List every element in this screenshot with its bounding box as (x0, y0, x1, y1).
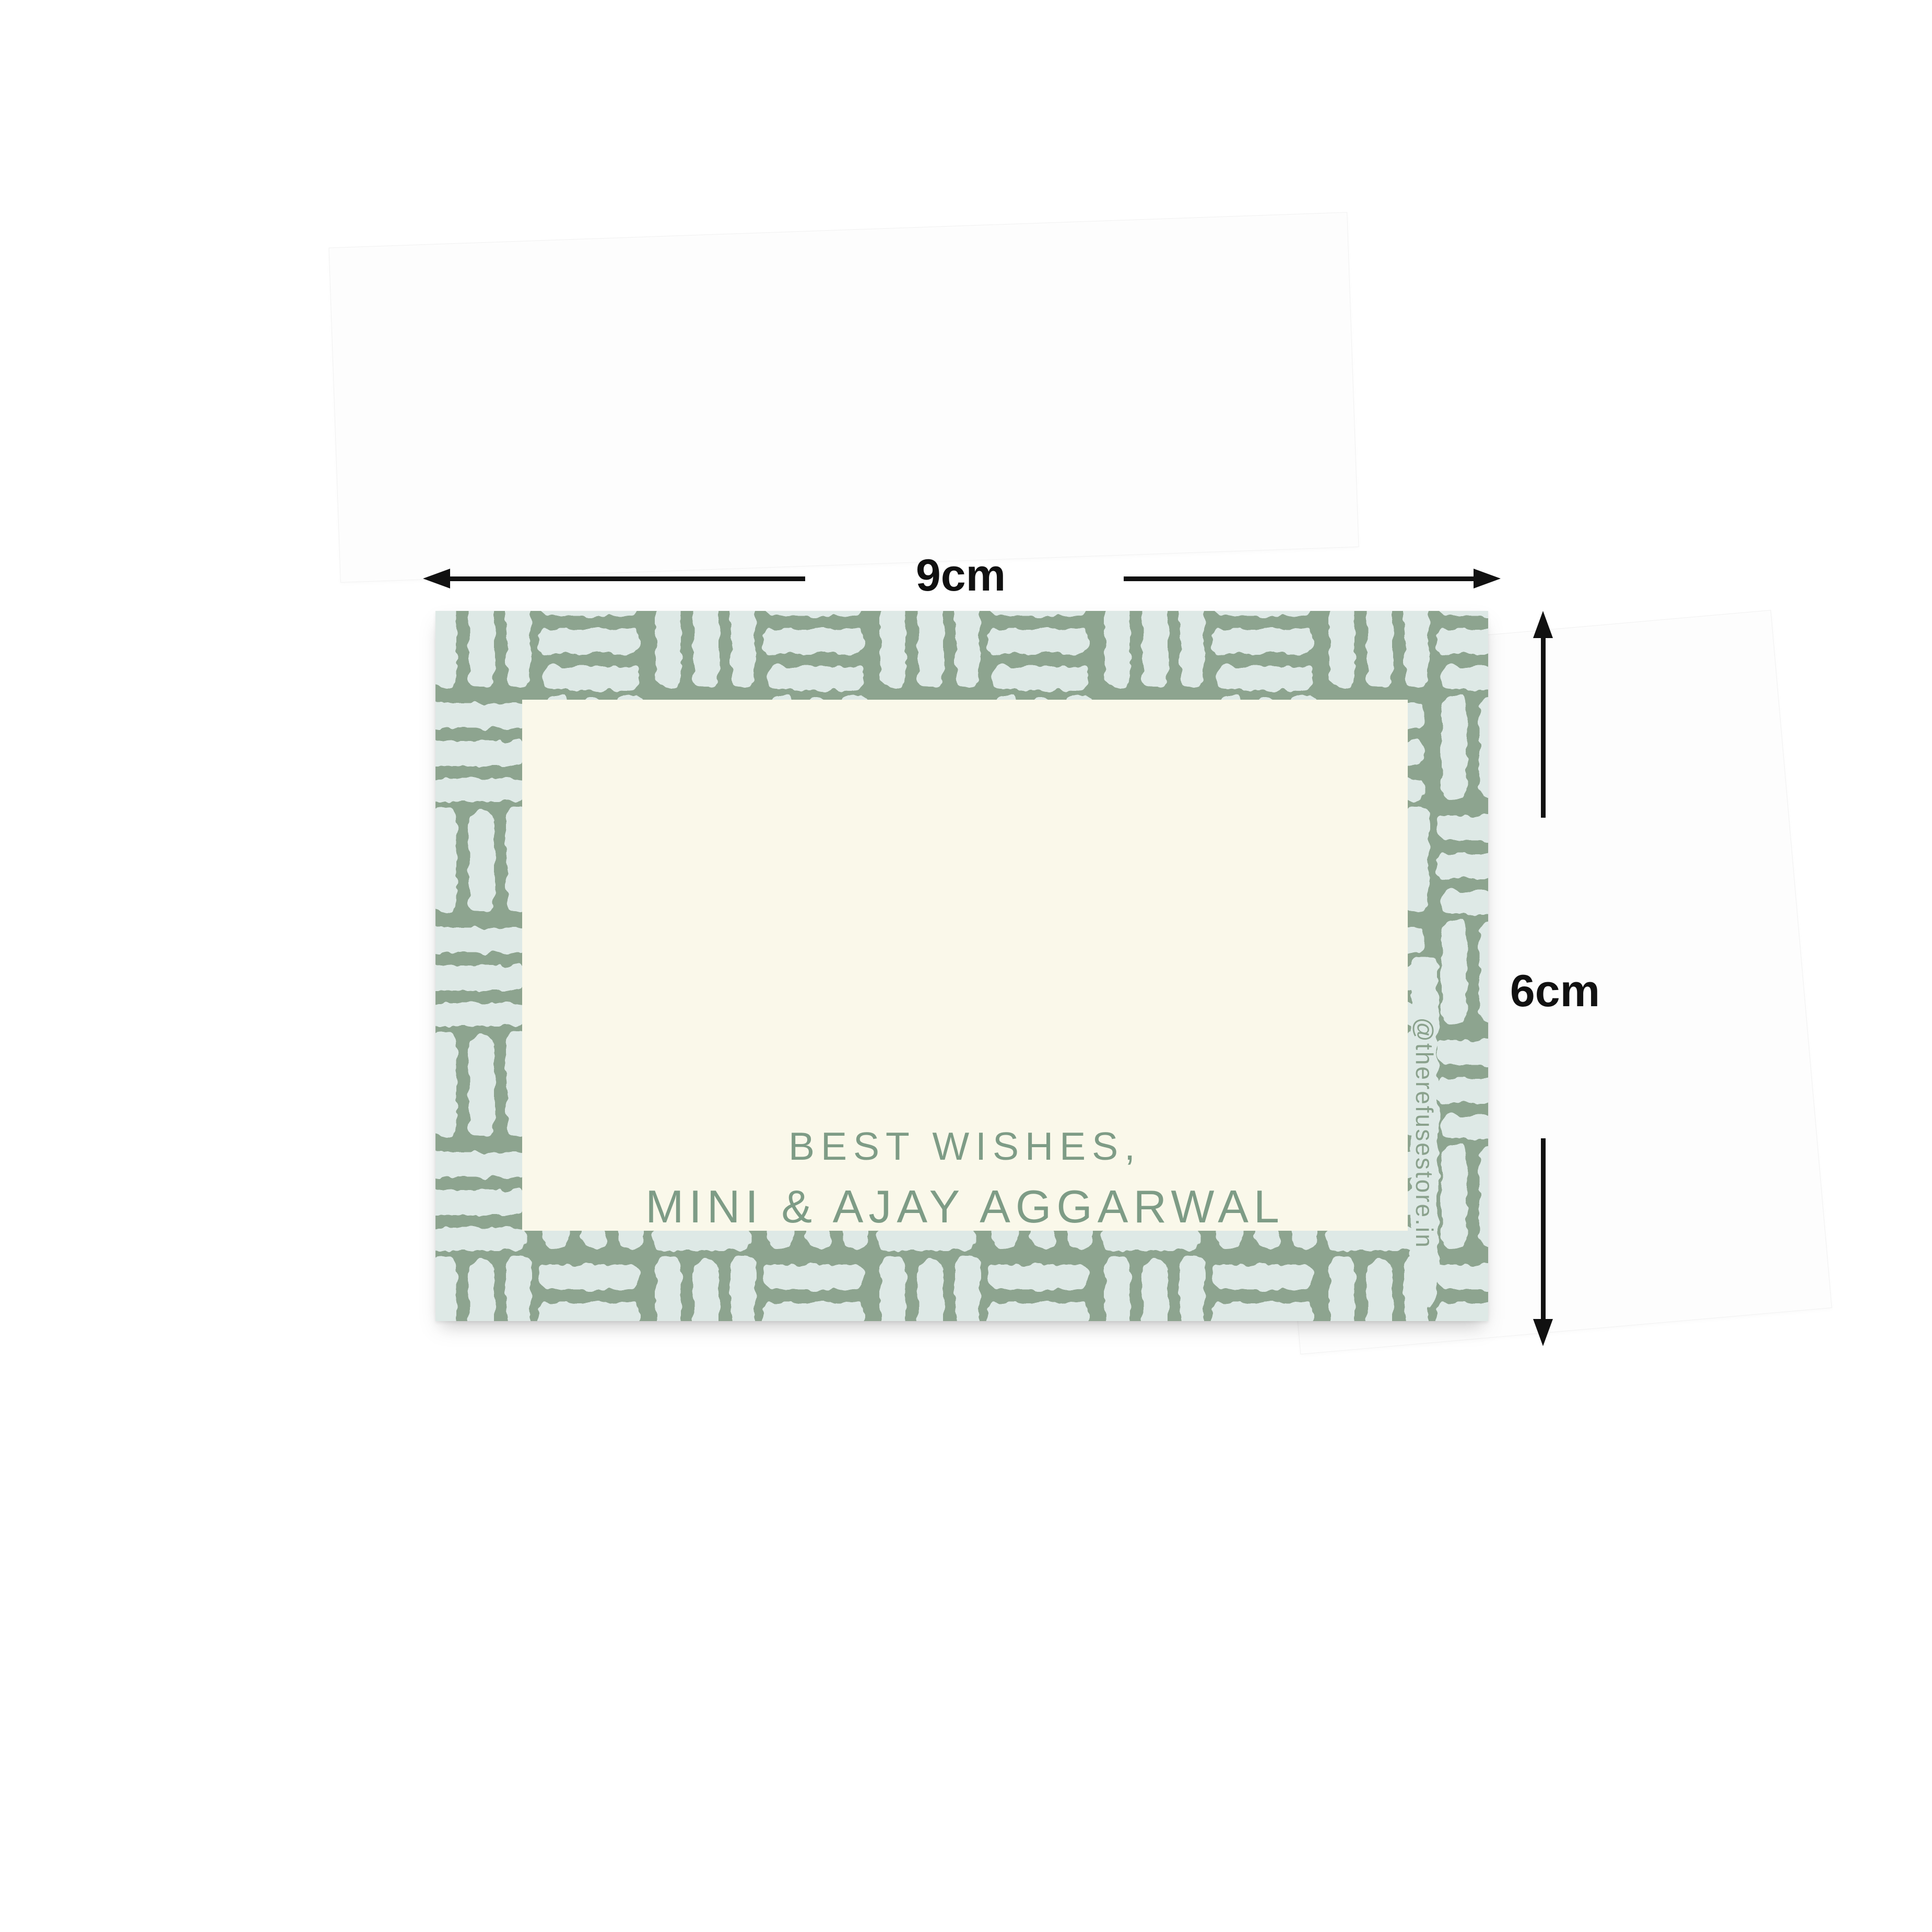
width-arrowhead-left (423, 569, 450, 588)
width-arrowhead-right (1474, 569, 1501, 588)
height-dimension-label: 6cm (1510, 969, 1600, 1014)
height-arrowhead-up (1533, 611, 1553, 638)
width-dimension-line-right (1124, 576, 1475, 581)
card-message-line2: MINI & AJAY AGGARWAL (522, 1184, 1408, 1230)
gift-tag-card: BEST WISHES, MINI & AJAY AGGARWAL @there… (435, 611, 1488, 1321)
height-dimension-line-top (1541, 637, 1546, 818)
width-dimension-line-left (448, 576, 805, 581)
height-arrowhead-down (1533, 1319, 1553, 1346)
card-message-line1: BEST WISHES, (522, 1127, 1408, 1166)
height-dimension-line-bottom (1541, 1138, 1546, 1319)
background-card-top (328, 212, 1359, 583)
width-dimension-label: 9cm (916, 553, 1006, 598)
product-image-canvas: BEST WISHES, MINI & AJAY AGGARWAL @there… (0, 0, 1932, 1932)
watermark-text: @therefusestore.in (1411, 958, 1438, 1309)
